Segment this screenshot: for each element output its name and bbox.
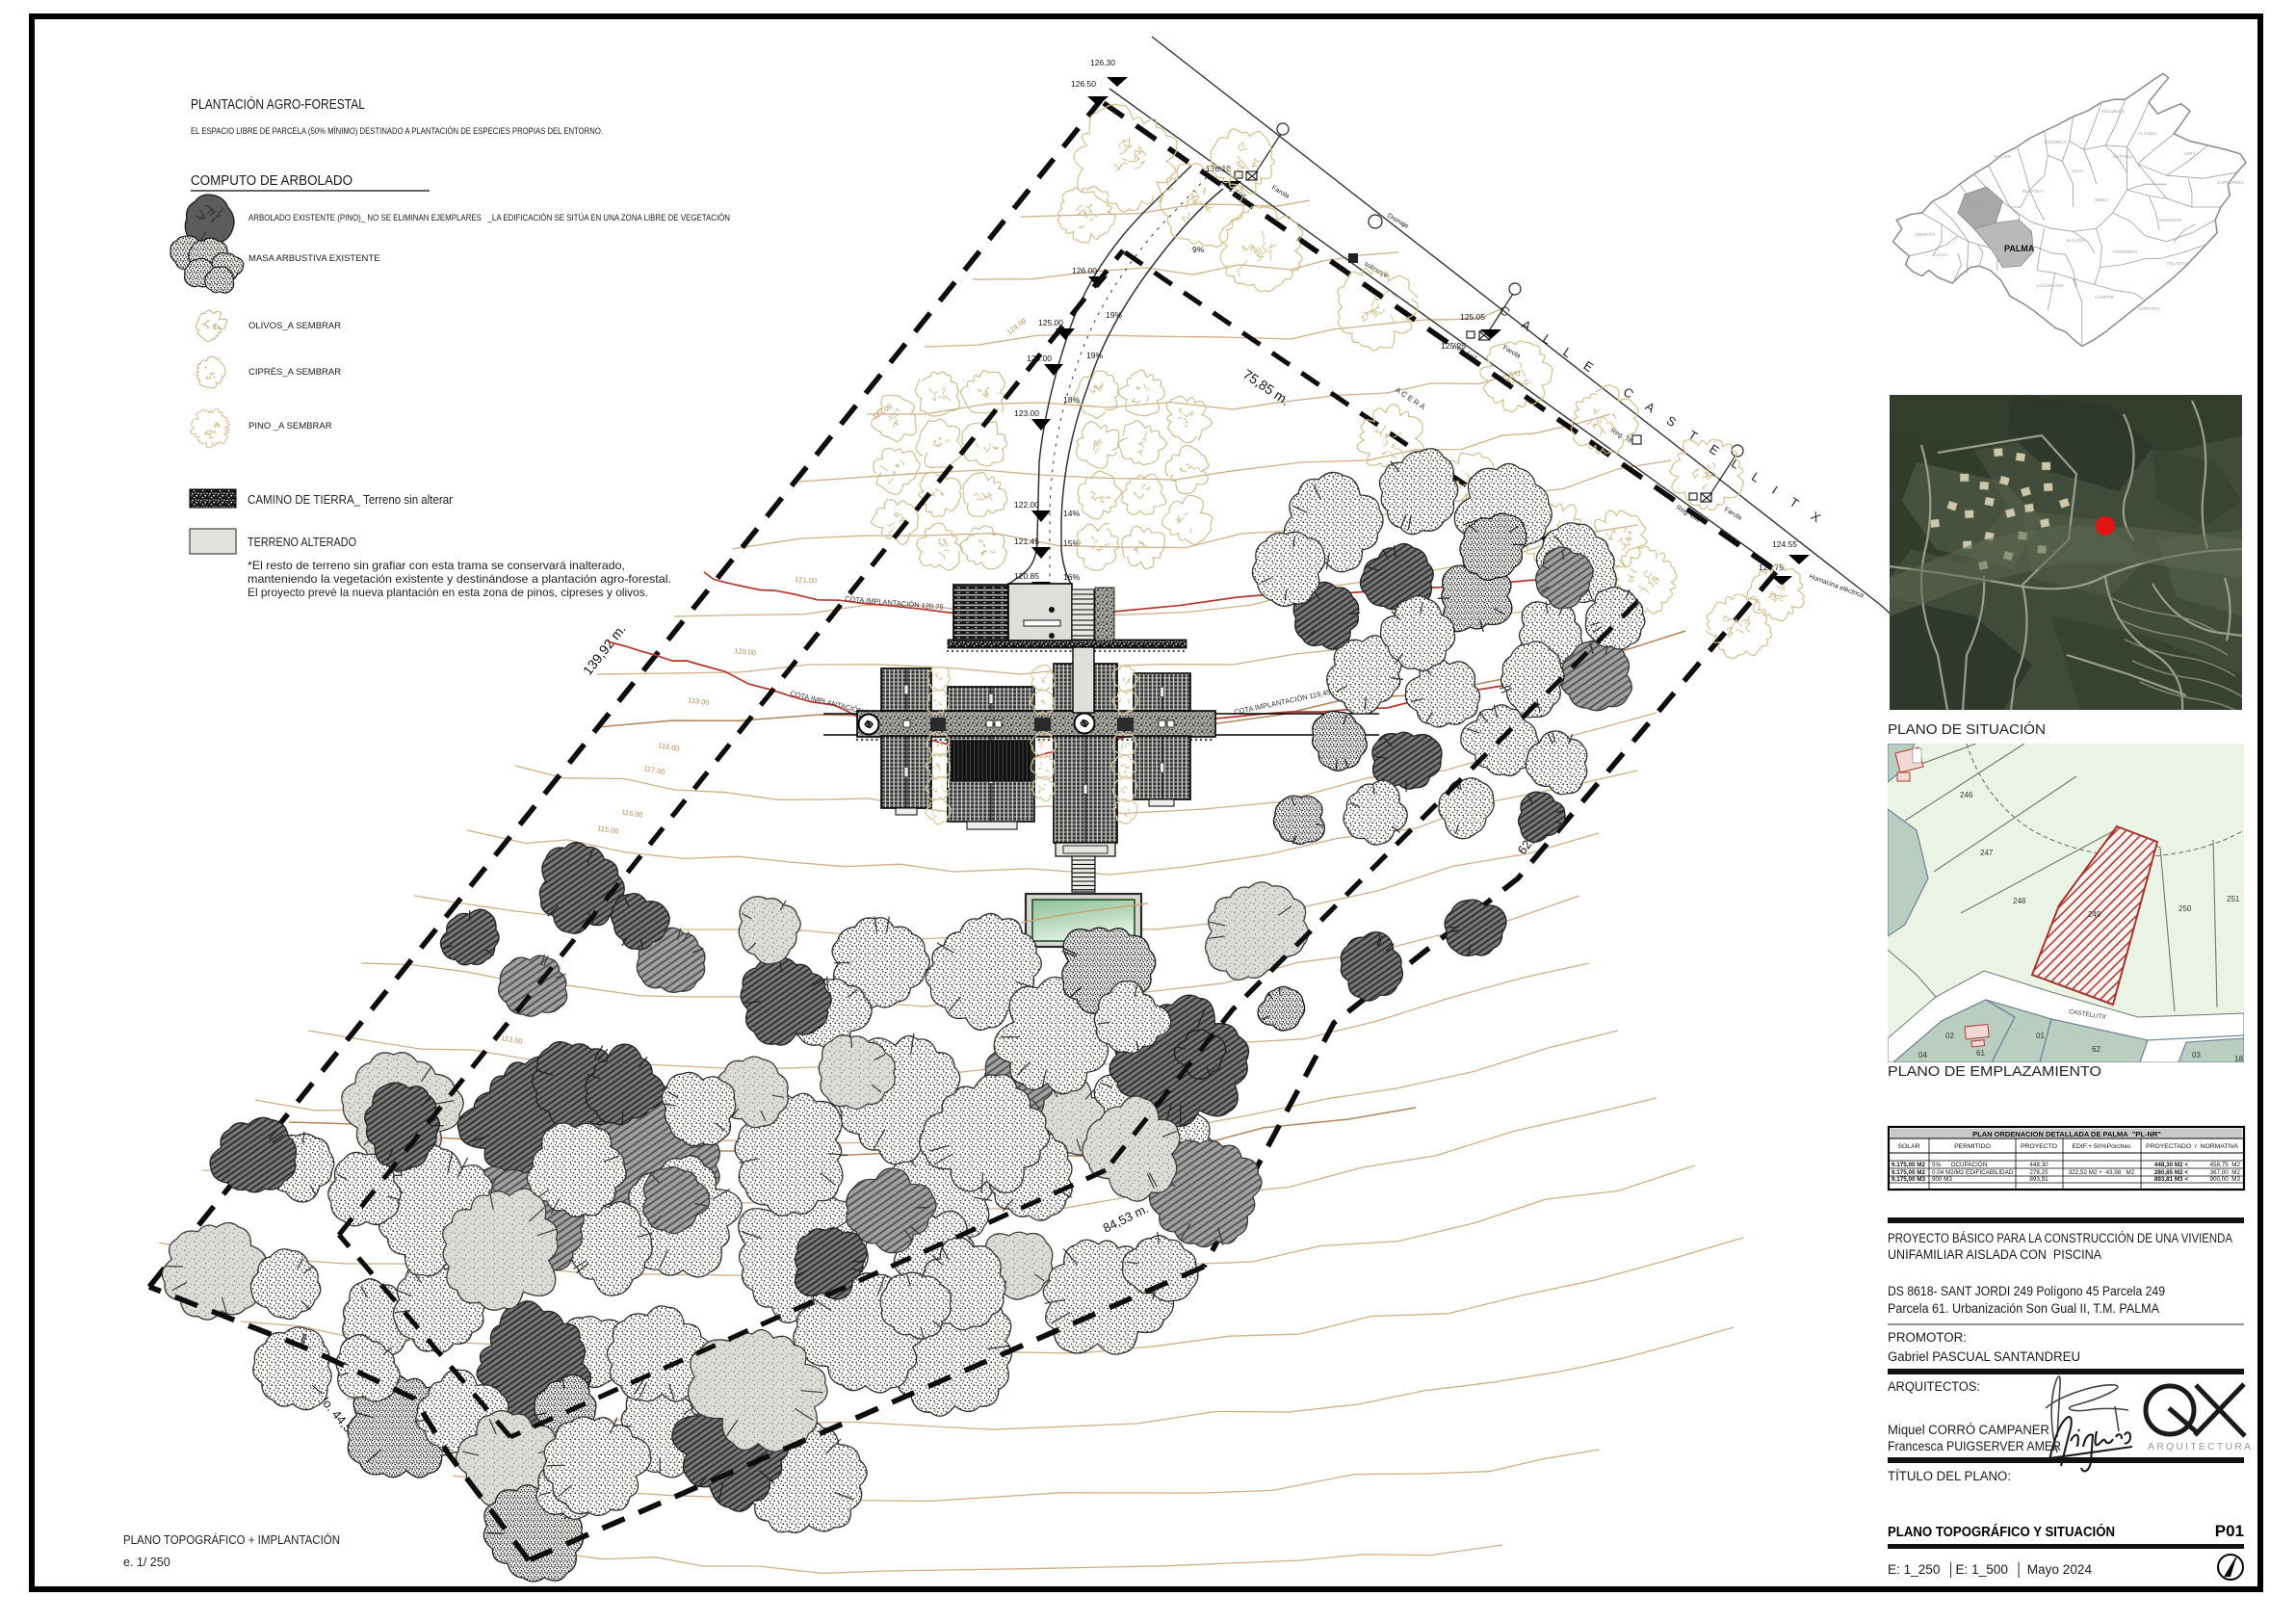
svg-text:UNIFAMILIAR AISLADA CON PISCI: UNIFAMILIAR AISLADA CON PISCINA: [1888, 1247, 2101, 1262]
svg-text:*El resto de terreno sin grafi: *El resto de terreno sin grafiar con est…: [248, 559, 625, 572]
svg-text:124.55: 124.55: [1772, 539, 1797, 549]
svg-text:PROYECTO: PROYECTO: [2021, 1143, 2057, 1150]
svg-text:14%: 14%: [1063, 509, 1080, 518]
svg-text:ALCUDIA: ALCUDIA: [2138, 131, 2157, 136]
svg-text:PLANO TOPOGRÁFICO + IMPLANTACI: PLANO TOPOGRÁFICO + IMPLANTACIÓN: [123, 1532, 340, 1547]
svg-text:TÍTULO DEL PLANO:: TÍTULO DEL PLANO:: [1888, 1469, 2011, 1483]
svg-text:PLANTACIÓN AGRO-FORESTAL: PLANTACIÓN AGRO-FORESTAL: [191, 96, 365, 113]
svg-text:LLUCMAJOR: LLUCMAJOR: [2037, 283, 2064, 288]
svg-text:121.45: 121.45: [1014, 536, 1039, 546]
svg-text:PLAN ORDENACION DETALLADA DE P: PLAN ORDENACION DETALLADA DE PALMA "PL-N…: [1972, 1130, 2161, 1138]
svg-text:ARBOLADO EXISTENTE (PINO)_ NO: ARBOLADO EXISTENTE (PINO)_ NO SE ELIMINA…: [248, 213, 730, 223]
svg-text:16%: 16%: [1063, 572, 1080, 582]
svg-text:123.00: 123.00: [1014, 408, 1039, 418]
svg-text:04: 04: [1918, 1051, 1927, 1060]
svg-text:P01: P01: [2215, 1522, 2244, 1540]
svg-text:CAMPOS: CAMPOS: [2095, 295, 2114, 300]
svg-text:PROYECTADO / NORMATIVA: PROYECTADO / NORMATIVA: [2146, 1143, 2238, 1150]
svg-text:SINEU: SINEU: [2095, 197, 2108, 202]
svg-text:120.85: 120.85: [1014, 571, 1039, 581]
svg-text:OLIVOS_A SEMBRAR: OLIVOS_A SEMBRAR: [248, 321, 341, 331]
svg-text:367,00 M2: 367,00 M2: [2209, 1169, 2240, 1176]
svg-text:ESPORLES: ESPORLES: [1965, 203, 1988, 208]
svg-text:251: 251: [2227, 895, 2240, 903]
svg-text:POLLENCA: POLLENCA: [2101, 109, 2125, 114]
svg-text:INCA: INCA: [2073, 169, 2083, 173]
svg-text:Francesca PUIGSERVER AMER: Francesca PUIGSERVER AMER: [1888, 1439, 2061, 1453]
svg-text:CAPDEPERA: CAPDEPERA: [2217, 180, 2244, 185]
svg-text:CIPRÉS_A SEMBRAR: CIPRÉS_A SEMBRAR: [248, 367, 341, 378]
svg-text:PLANO DE SITUACIÓN: PLANO DE SITUACIÓN: [1888, 721, 2046, 738]
svg-text:ARQUITECTURA: ARQUITECTURA: [2148, 1441, 2253, 1452]
svg-text:PERMITIDO: PERMITIDO: [1954, 1143, 1991, 1150]
svg-text:278,25: 278,25: [2029, 1169, 2048, 1176]
svg-text:9%: 9%: [1192, 245, 1205, 254]
svg-text:01: 01: [2036, 1032, 2045, 1040]
svg-text:458,75 M2: 458,75 M2: [2209, 1162, 2240, 1168]
svg-text:0.04 M2/M2 EDIFICABILIDAD: 0.04 M2/M2 EDIFICABILIDAD: [1932, 1169, 2014, 1176]
svg-text:SANTANYI: SANTANYI: [2138, 306, 2159, 311]
svg-text:PROYECTO BÁSICO PARA LA CONSTR: PROYECTO BÁSICO PARA LA CONSTRUCCIÓN DE …: [1888, 1231, 2232, 1245]
svg-text:19%: 19%: [1086, 351, 1103, 360]
svg-text:ESCORCA: ESCORCA: [2045, 140, 2066, 144]
svg-text:126.50: 126.50: [1071, 79, 1096, 89]
svg-text:FELANITX: FELANITX: [2167, 261, 2188, 266]
svg-text:ARQUITECTOS:: ARQUITECTOS:: [1888, 1379, 1980, 1394]
svg-text:manteniendo la vegetación exis: manteniendo la vegetación existente y de…: [248, 572, 671, 586]
svg-text:SOLLER: SOLLER: [1994, 154, 2012, 159]
svg-text:CAMINO DE TIERRA_ Terreno sin: CAMINO DE TIERRA_ Terreno sin alterar: [248, 492, 454, 507]
svg-text:TERRENO ALTERADO: TERRENO ALTERADO: [248, 535, 356, 549]
svg-text:126.10: 126.10: [1206, 164, 1231, 173]
svg-text:SA POBLA: SA POBLA: [2113, 154, 2134, 159]
svg-text:EL ESPACIO LIBRE DE PARCELA (5: EL ESPACIO LIBRE DE PARCELA (50% MÍNIMO)…: [191, 126, 603, 137]
svg-text:5% OCUPACIÓN: 5% OCUPACIÓN: [1932, 1160, 1988, 1168]
svg-text:62: 62: [2092, 1045, 2100, 1054]
svg-text:9.175,00 M2: 9.175,00 M2: [1892, 1169, 1926, 1176]
svg-text:ALGAIDA: ALGAIDA: [2066, 238, 2085, 243]
svg-text:448,30 M2 <: 448,30 M2 <: [2154, 1162, 2189, 1168]
svg-text:893,91: 893,91: [2029, 1176, 2048, 1183]
svg-text:PALMA: PALMA: [2004, 244, 2035, 253]
svg-text:SOLAR: SOLAR: [1897, 1143, 1919, 1150]
svg-text:e. 1/ 250: e. 1/ 250: [123, 1556, 170, 1569]
svg-text:ANDRATX: ANDRATX: [1915, 232, 1935, 237]
svg-text:280,85 M2 <: 280,85 M2 <: [2154, 1169, 2189, 1176]
svg-text:900 M3: 900 M3: [1932, 1176, 1953, 1183]
svg-text:448,30: 448,30: [2029, 1162, 2048, 1168]
svg-text:02: 02: [1945, 1032, 1954, 1040]
svg-text:9.175,00 M2: 9.175,00 M2: [1892, 1162, 1926, 1168]
svg-text:322,52 M2 + 43,98 M2: 322,52 M2 + 43,98 M2: [2069, 1169, 2135, 1176]
svg-text:250: 250: [2179, 904, 2192, 913]
svg-text:PINO _A SEMBRAR: PINO _A SEMBRAR: [248, 421, 332, 432]
svg-text:EDIF.+ 50%Porches: EDIF.+ 50%Porches: [2072, 1143, 2131, 1150]
svg-text:18: 18: [2234, 1055, 2243, 1063]
svg-text:Miquel CORRÓ CAMPANER: Miquel CORRÓ CAMPANER: [1888, 1423, 2049, 1437]
svg-text:126.00: 126.00: [1072, 266, 1097, 275]
svg-text:246: 246: [1960, 791, 1973, 799]
svg-text:61: 61: [1976, 1049, 1985, 1058]
svg-text:900,00 M3: 900,00 M3: [2209, 1176, 2240, 1183]
svg-text:03: 03: [2192, 1051, 2201, 1060]
svg-text:PLANO DE EMPLAZAMIENTO: PLANO DE EMPLAZAMIENTO: [1888, 1063, 2101, 1080]
svg-text:CALVIA: CALVIA: [1933, 252, 1948, 257]
svg-text:126.30: 126.30: [1090, 58, 1115, 67]
svg-text:COMPUTO DE ARBOLADO: COMPUTO DE ARBOLADO: [191, 173, 352, 189]
svg-text:PLANO TOPOGRÁFICO Y SITUACIÓN: PLANO TOPOGRÁFICO Y SITUACIÓN: [1888, 1523, 2115, 1540]
svg-text:Gabriel PASCUAL SANTANDREU: Gabriel PASCUAL SANTANDREU: [1888, 1349, 2080, 1364]
svg-text:125.05: 125.05: [1460, 312, 1485, 322]
svg-text:Parcela 61. Urbanización Son G: Parcela 61. Urbanización Son Gual II, T.…: [1888, 1301, 2159, 1316]
svg-text:BUNYOLA: BUNYOLA: [2022, 189, 2044, 194]
svg-text:247: 247: [1980, 849, 1994, 857]
svg-text:ARTA: ARTA: [2184, 151, 2196, 156]
svg-text:MANACOR: MANACOR: [2159, 218, 2182, 222]
svg-text:E: 1_250 │E: 1_500 │ Mayo 20: E: 1_250 │E: 1_500 │ Mayo 2024: [1888, 1561, 2092, 1579]
svg-text:893,81 M3 <: 893,81 M3 <: [2154, 1176, 2189, 1183]
svg-text:122.00: 122.00: [1014, 500, 1039, 510]
svg-text:9.175,00 M3: 9.175,00 M3: [1892, 1176, 1926, 1183]
svg-text:El proyecto prevé la nueva pla: El proyecto prevé la nueva plantación en…: [248, 586, 648, 599]
svg-text:248: 248: [2013, 897, 2026, 905]
svg-text:249: 249: [2088, 910, 2101, 919]
svg-text:121.00: 121.00: [795, 575, 818, 586]
svg-text:19%: 19%: [1106, 310, 1122, 320]
svg-text:PROMOTOR:: PROMOTOR:: [1888, 1330, 1967, 1345]
svg-text:MASA ARBUSTIVA EXISTENTE: MASA ARBUSTIVA EXISTENTE: [248, 253, 380, 264]
svg-text:DS 8618- SANT JORDI 249 Polígo: DS 8618- SANT JORDI 249 Polígono 45 Parc…: [1888, 1284, 2165, 1298]
svg-text:PORRERES: PORRERES: [2113, 249, 2137, 254]
